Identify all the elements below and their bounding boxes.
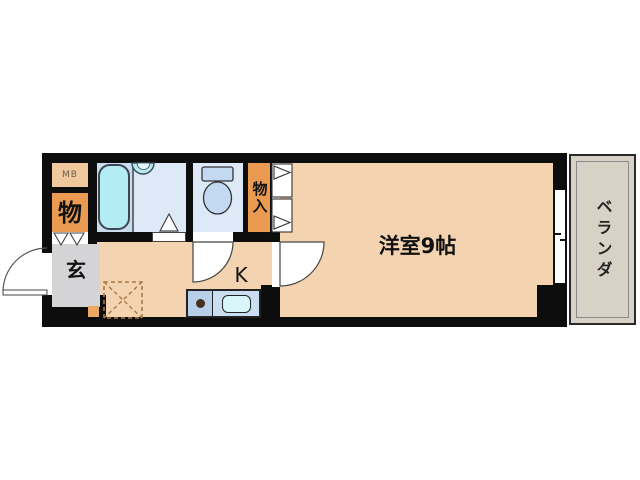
bathtub-icon bbox=[99, 165, 129, 229]
entrance-door-leaf bbox=[3, 290, 47, 295]
storage-door-icon bbox=[54, 233, 68, 245]
bath-door-icon bbox=[160, 214, 178, 231]
entrance-label: 玄 bbox=[52, 250, 100, 290]
meter-box-label: MB bbox=[52, 163, 88, 187]
closet-label: 物入 bbox=[246, 163, 272, 232]
main-room-label: 洋室9帖 bbox=[280, 233, 555, 259]
storage-door-icon bbox=[70, 233, 84, 245]
veranda-label: ベランダ bbox=[569, 160, 636, 320]
toilet-tank-icon bbox=[202, 167, 233, 181]
floorplan-image: MB 物 物入 玄 K 洋室9帖 ベランダ bbox=[0, 0, 640, 480]
kitchen-label: K bbox=[225, 262, 257, 288]
toilet-bowl-icon bbox=[204, 182, 232, 214]
entrance-door-arc bbox=[3, 248, 47, 292]
storage-label: 物 bbox=[52, 193, 88, 232]
